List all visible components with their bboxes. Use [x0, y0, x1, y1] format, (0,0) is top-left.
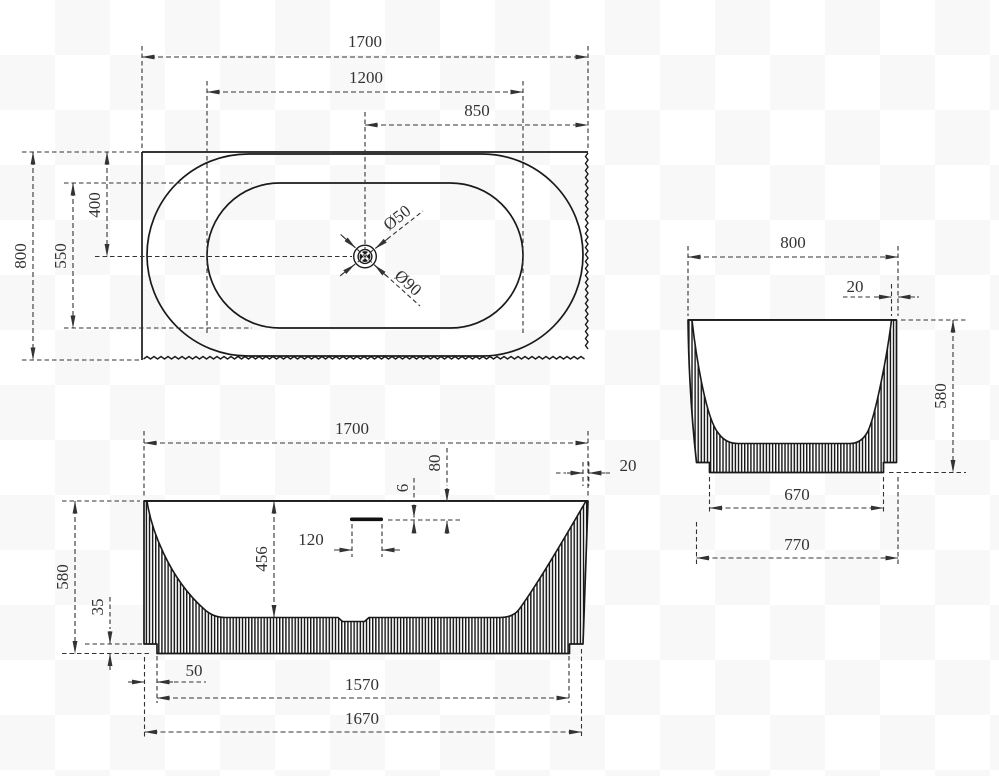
front-view: 1700 580 35 456 120 6 80 — [53, 419, 637, 737]
dim-plan-inner-length-label: 1200 — [349, 68, 383, 87]
dim-plan-drain-label: 850 — [464, 101, 490, 120]
dim-front-bottom-length-label: 1670 — [345, 709, 379, 728]
dim-front-base-inset-label: 50 — [186, 661, 203, 680]
dim-front-depth-label: 456 — [252, 546, 271, 572]
side-interior — [692, 320, 892, 444]
dim-front-slot-label: 6 — [393, 484, 412, 493]
dim-front-base-length-label: 1570 — [345, 675, 379, 694]
plan-view: Ø50 Ø90 1700 1200 850 800 550 400 — [11, 32, 588, 360]
dim-plan-length-label: 1700 — [348, 32, 382, 51]
bathtub-technical-drawing: Ø50 Ø90 1700 1200 850 800 550 400 1 — [0, 0, 999, 776]
side-view: 800 20 580 670 770 — [688, 233, 966, 564]
dim-side-base-width-label: 670 — [784, 485, 810, 504]
dim-front-length-label: 1700 — [335, 419, 369, 438]
dim-plan-inner-width-label: 550 — [51, 243, 70, 269]
dim-front-height-label: 580 — [53, 564, 72, 590]
dim-side-wall-label: 20 — [847, 277, 864, 296]
plan-fluted-right-edge — [586, 153, 589, 349]
dim-front-taper-label: 20 — [620, 456, 637, 475]
dim-side-height-label: 580 — [931, 383, 950, 409]
drain-arrow — [343, 236, 356, 247]
dim-drain-large-label: Ø90 — [391, 266, 425, 300]
dim-front-overflow-width-label: 120 — [298, 530, 324, 549]
drain-arrow — [375, 238, 388, 249]
overflow-slot — [350, 518, 383, 522]
dim-plan-width-label: 800 — [11, 243, 30, 269]
dim-side-width-label: 800 — [780, 233, 806, 252]
dim-plan-drain-back-label: 400 — [85, 192, 104, 218]
dim-drain-small-label: Ø50 — [380, 201, 415, 234]
dim-front-plinth-label: 35 — [88, 599, 107, 616]
dim-front-overflow-rim-label: 80 — [425, 455, 444, 472]
drain-arrow — [375, 265, 388, 276]
drain-arrow — [341, 265, 355, 276]
dim-side-bottom-width-label: 770 — [784, 535, 810, 554]
plan-fluted-bottom-edge — [144, 357, 585, 360]
